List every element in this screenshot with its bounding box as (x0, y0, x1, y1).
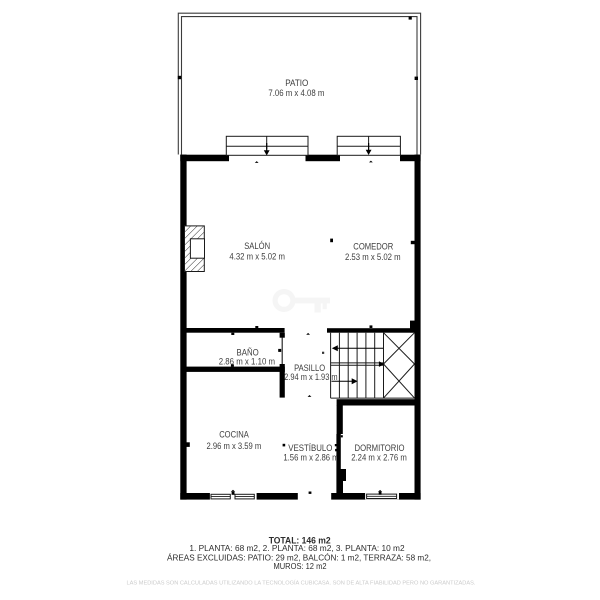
svg-text:ÁREAS EXCLUIDAS: PATIO: 29 m2,: ÁREAS EXCLUIDAS: PATIO: 29 m2, BALCÓN: 1… (167, 553, 431, 563)
svg-text:7.06 m x 4.08 m: 7.06 m x 4.08 m (268, 88, 324, 98)
svg-text:4.32 m x 5.02 m: 4.32 m x 5.02 m (229, 251, 285, 261)
svg-text:MUROS: 12 m2: MUROS: 12 m2 (274, 562, 327, 571)
svg-text:VESTÍBULO: VESTÍBULO (288, 443, 332, 453)
svg-text:2.96 m x 3.59 m: 2.96 m x 3.59 m (207, 441, 262, 451)
svg-text:2.86 m x 1.10 m: 2.86 m x 1.10 m (219, 356, 275, 366)
svg-text:2.24 m x 2.76 m: 2.24 m x 2.76 m (351, 453, 407, 463)
svg-text:1.56 m x 2.86 m: 1.56 m x 2.86 m (283, 453, 338, 463)
svg-text:COMEDOR: COMEDOR (353, 241, 393, 251)
svg-text:LAS MEDIDAS SON CALCULADAS UTI: LAS MEDIDAS SON CALCULADAS UTILIZANDO LA… (127, 579, 476, 586)
svg-text:2.94 m x 1.93 m: 2.94 m x 1.93 m (284, 372, 338, 382)
svg-text:2.53 m x 5.02 m: 2.53 m x 5.02 m (345, 252, 401, 262)
svg-text:DORMITORIO: DORMITORIO (355, 443, 405, 453)
svg-text:1. PLANTA: 68 m2, 2. PLANTA: 6: 1. PLANTA: 68 m2, 2. PLANTA: 68 m2, 3. P… (189, 544, 405, 553)
svg-text:SALÓN: SALÓN (244, 241, 270, 251)
svg-text:PATIO: PATIO (285, 78, 308, 88)
svg-text:COCINA: COCINA (219, 430, 249, 440)
